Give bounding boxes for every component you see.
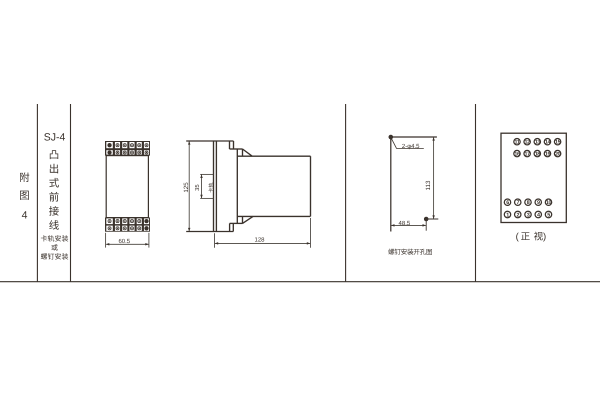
- svg-text:7: 7: [516, 200, 519, 206]
- svg-text:35: 35: [194, 184, 201, 190]
- svg-text:5: 5: [547, 213, 550, 219]
- svg-text:8: 8: [527, 200, 530, 206]
- svg-text:48.5: 48.5: [399, 220, 411, 227]
- svg-text:10: 10: [546, 200, 552, 206]
- svg-text:20: 20: [555, 152, 561, 158]
- svg-text:): ): [543, 232, 546, 243]
- svg-text:2: 2: [516, 213, 519, 219]
- svg-text:SJ-4: SJ-4: [44, 131, 66, 143]
- svg-text:1: 1: [506, 213, 509, 219]
- svg-text:15: 15: [555, 140, 561, 146]
- svg-text:18: 18: [535, 152, 541, 158]
- svg-text:2-φ4.5: 2-φ4.5: [402, 143, 420, 150]
- svg-text:14: 14: [545, 140, 551, 146]
- svg-text:4: 4: [22, 210, 28, 222]
- svg-text:113: 113: [425, 180, 432, 190]
- svg-text:17: 17: [525, 152, 531, 158]
- svg-text:19: 19: [545, 152, 551, 158]
- svg-text:13: 13: [535, 140, 541, 146]
- svg-text:16: 16: [514, 152, 520, 158]
- svg-text:(: (: [516, 232, 520, 243]
- svg-text:3: 3: [527, 213, 530, 219]
- svg-text:128: 128: [254, 237, 265, 244]
- svg-text:125: 125: [183, 182, 190, 193]
- svg-text:12: 12: [525, 140, 531, 146]
- svg-text:60.5: 60.5: [118, 238, 130, 245]
- svg-text:11: 11: [515, 140, 520, 146]
- svg-text:6: 6: [506, 200, 509, 206]
- svg-text:9: 9: [537, 200, 540, 206]
- svg-text:4: 4: [537, 213, 540, 219]
